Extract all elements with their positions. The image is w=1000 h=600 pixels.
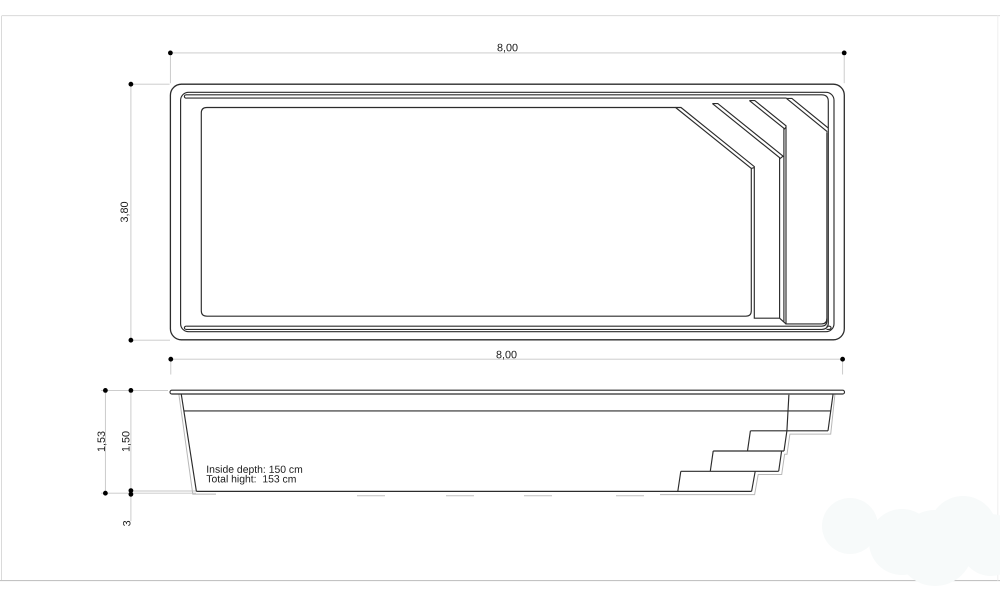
svg-text:1,53: 1,53 — [96, 431, 108, 452]
svg-text:8,00: 8,00 — [496, 349, 517, 361]
svg-text:8,00: 8,00 — [497, 42, 518, 54]
svg-text:Total hight: 153 cm: Total hight: 153 cm — [206, 474, 296, 485]
svg-text:3: 3 — [122, 520, 134, 526]
svg-text:1,50: 1,50 — [121, 431, 133, 452]
svg-text:3,80: 3,80 — [119, 201, 131, 222]
